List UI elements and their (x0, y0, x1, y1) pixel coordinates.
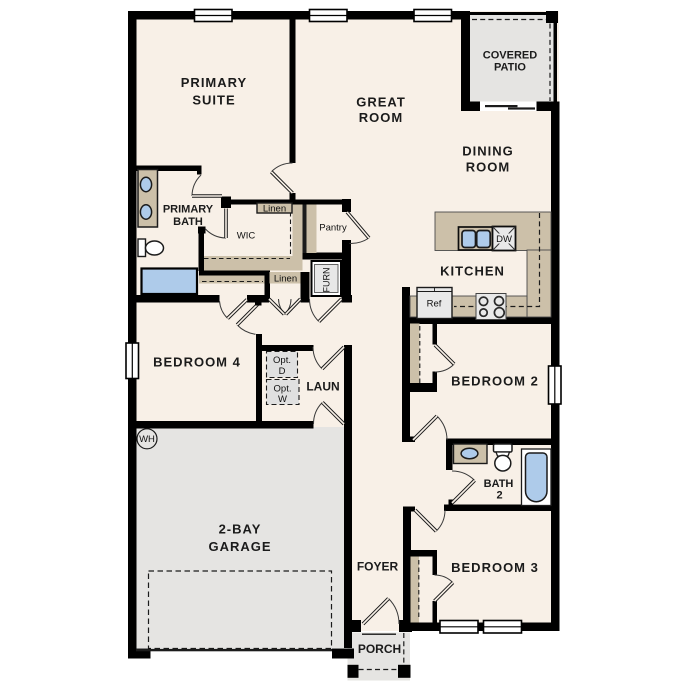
svg-text:FOYER: FOYER (357, 560, 399, 574)
svg-text:D: D (279, 366, 286, 377)
svg-text:PRIMARY: PRIMARY (181, 75, 247, 90)
svg-text:2: 2 (496, 490, 502, 502)
svg-text:KITCHEN: KITCHEN (440, 264, 505, 279)
svg-text:LAUN: LAUN (306, 380, 339, 394)
svg-text:BEDROOM 2: BEDROOM 2 (451, 374, 539, 389)
svg-text:PORCH: PORCH (358, 642, 401, 656)
svg-text:DW: DW (496, 234, 512, 245)
svg-text:BEDROOM 4: BEDROOM 4 (153, 355, 241, 370)
svg-text:GREAT: GREAT (356, 95, 406, 110)
svg-text:PATIO: PATIO (494, 62, 526, 74)
svg-text:FURN: FURN (322, 268, 332, 293)
svg-text:Pantry: Pantry (319, 223, 347, 234)
svg-text:W: W (278, 394, 287, 405)
svg-text:WH: WH (139, 434, 155, 445)
svg-text:ROOM: ROOM (466, 160, 510, 175)
svg-text:Opt.: Opt. (274, 384, 292, 395)
svg-text:WIC: WIC (237, 231, 256, 242)
svg-text:Linen: Linen (274, 274, 297, 285)
svg-text:BATH: BATH (173, 216, 203, 228)
svg-text:COVERED: COVERED (483, 50, 537, 62)
svg-text:Linen: Linen (263, 204, 286, 215)
svg-text:Opt.: Opt. (273, 355, 291, 366)
svg-text:PRIMARY: PRIMARY (163, 204, 214, 216)
svg-text:BATH: BATH (484, 478, 514, 490)
svg-text:DINING: DINING (462, 144, 514, 159)
svg-text:2-BAY: 2-BAY (219, 522, 262, 537)
svg-text:SUITE: SUITE (192, 93, 235, 108)
svg-text:ROOM: ROOM (359, 110, 403, 125)
svg-text:Ref: Ref (427, 299, 442, 310)
svg-text:BEDROOM 3: BEDROOM 3 (451, 560, 539, 575)
svg-text:GARAGE: GARAGE (208, 539, 271, 554)
